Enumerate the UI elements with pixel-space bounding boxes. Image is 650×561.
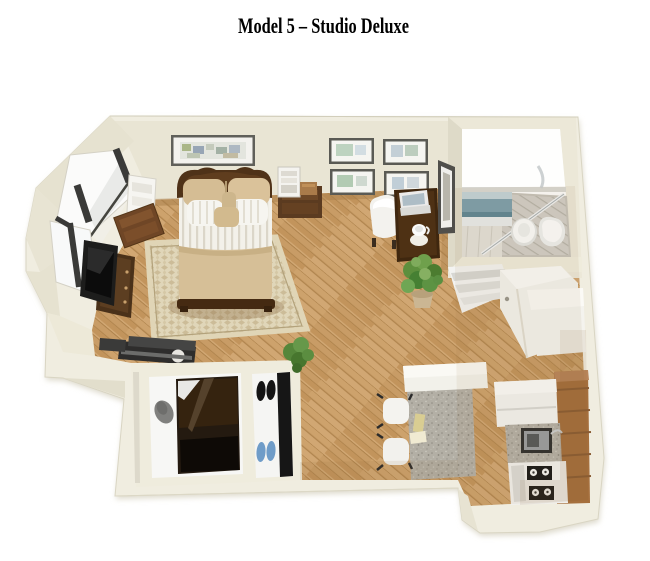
svg-text:Model 5 – Studio Deluxe: Model 5 – Studio Deluxe [238, 13, 409, 38]
